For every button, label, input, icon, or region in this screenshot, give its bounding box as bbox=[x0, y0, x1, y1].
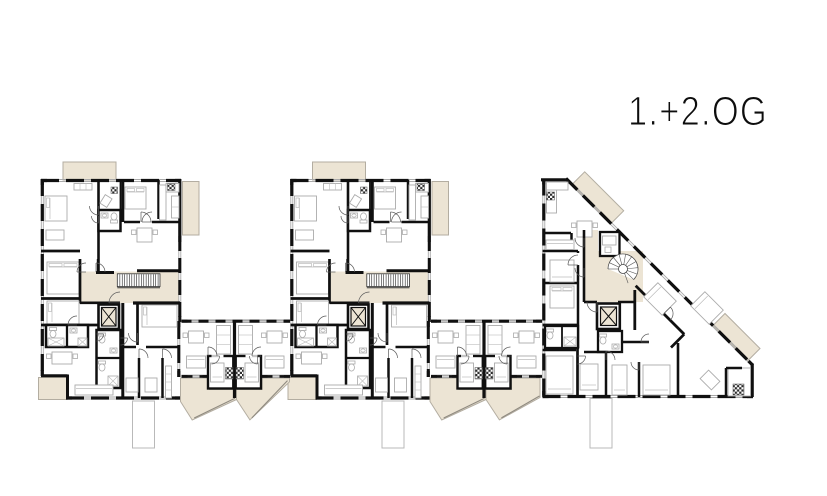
svg-text:1.+2.OG: 1.+2.OG bbox=[628, 88, 768, 134]
